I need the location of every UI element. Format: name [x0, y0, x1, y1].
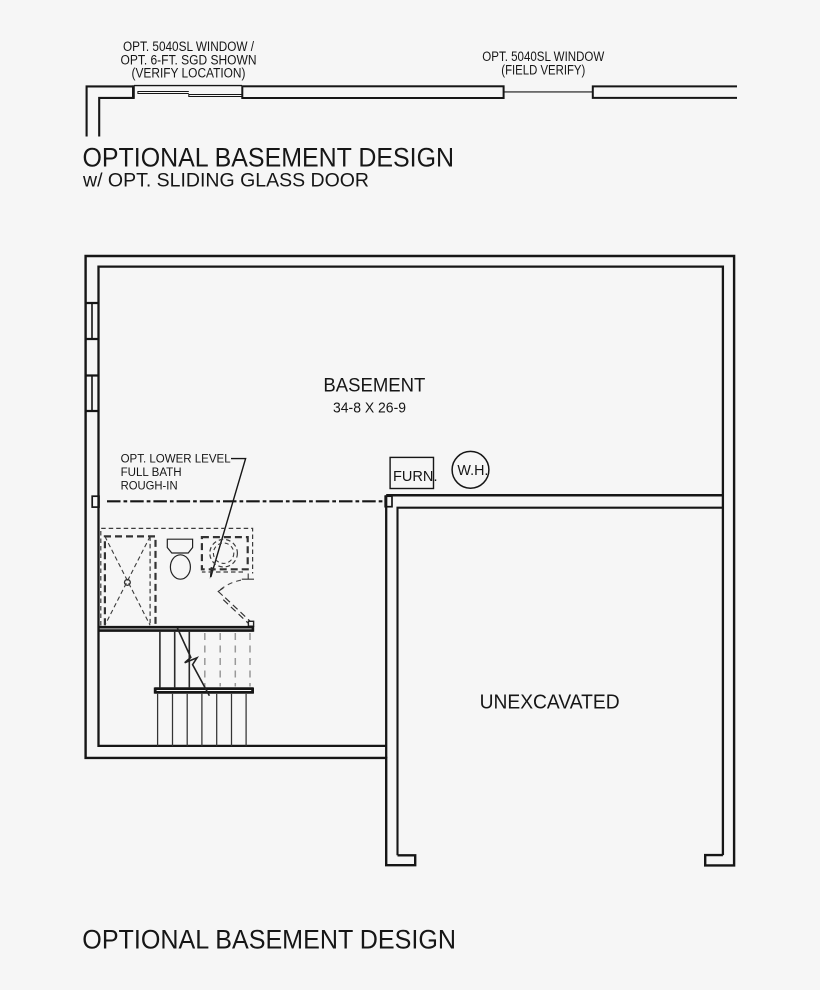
svg-text:OPTIONAL BASEMENT DESIGN: OPTIONAL BASEMENT DESIGN — [82, 925, 456, 955]
svg-text:ROUGH-IN: ROUGH-IN — [121, 479, 178, 493]
svg-text:BASEMENT: BASEMENT — [323, 374, 425, 396]
svg-text:FULL BATH: FULL BATH — [121, 465, 182, 479]
svg-text:W.H.: W.H. — [457, 463, 488, 479]
svg-text:UNEXCAVATED: UNEXCAVATED — [480, 692, 620, 714]
svg-text:OPTIONAL BASEMENT DESIGN: OPTIONAL BASEMENT DESIGN — [83, 142, 455, 172]
svg-text:(VERIFY LOCATION): (VERIFY LOCATION) — [132, 66, 246, 81]
svg-text:(FIELD VERIFY): (FIELD VERIFY) — [501, 63, 585, 78]
svg-text:w/ OPT. SLIDING GLASS DOOR: w/ OPT. SLIDING GLASS DOOR — [82, 171, 369, 192]
svg-text:OPT. LOWER LEVEL: OPT. LOWER LEVEL — [121, 451, 231, 465]
svg-text:FURN.: FURN. — [393, 469, 438, 485]
svg-text:34-8 X 26-9: 34-8 X 26-9 — [333, 400, 406, 417]
